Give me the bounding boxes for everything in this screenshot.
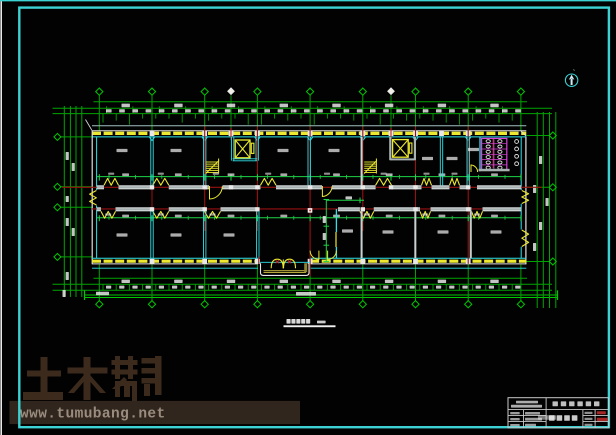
- svg-text:www.tumubang.net: www.tumubang.net: [20, 407, 166, 423]
